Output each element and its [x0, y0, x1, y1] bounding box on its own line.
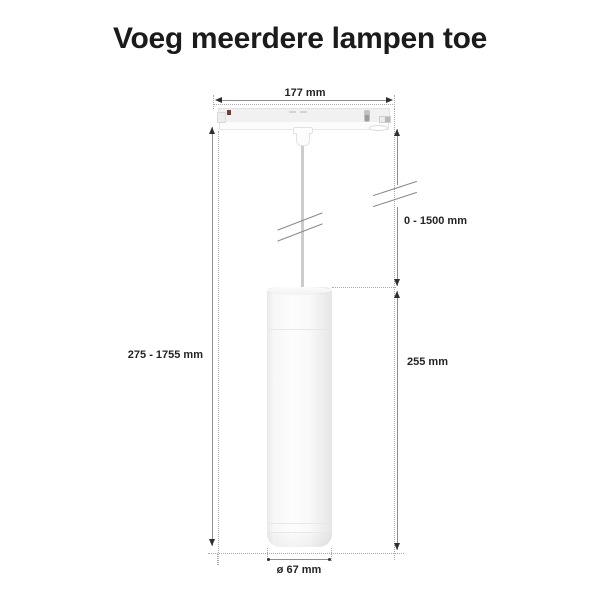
dimension-line-suspension-upper	[397, 129, 398, 185]
extension-line-track-left-top	[213, 95, 214, 109]
track-oval-detail	[369, 125, 388, 131]
dimension-label-overall-range: 275 - 1755 mm	[113, 348, 203, 362]
lamp-bottom-shade	[267, 533, 332, 547]
track-indicator-dot	[227, 110, 231, 115]
dimension-label-lamp-height: 255 mm	[407, 355, 448, 369]
pendant-cord	[301, 146, 304, 288]
cord-break-mark	[277, 212, 322, 230]
cord-canopy	[296, 133, 310, 146]
extension-line-lamp-top	[332, 287, 396, 288]
arrow-down-icon	[394, 543, 400, 550]
dimension-endpoint-dot	[267, 558, 270, 561]
arrow-right-icon	[386, 97, 393, 103]
lamp-seam-line	[268, 329, 331, 330]
dimension-endpoint-dot	[328, 558, 331, 561]
arrow-down-icon	[209, 539, 215, 546]
dimension-line-track-width	[219, 100, 389, 101]
lamp-seam-line	[268, 523, 331, 524]
extension-line-lamp-bottom	[208, 553, 404, 554]
track-lever-inner	[365, 115, 369, 121]
track-connector-box	[379, 116, 391, 123]
track-lever-switch	[364, 110, 370, 122]
product-dimension-diagram: Voeg meerdere lampen toe 177 mm 275 - 17…	[0, 0, 600, 600]
dimension-label-lamp-diameter: ø 67 mm	[264, 563, 334, 577]
extension-line-left	[218, 131, 219, 565]
track-mount-clip	[217, 112, 226, 123]
dimension-label-suspension-range: 0 - 1500 mm	[404, 214, 467, 228]
track-print-mark	[300, 111, 307, 113]
track-connector-end	[385, 117, 390, 122]
extension-stub-left	[217, 553, 218, 565]
arrow-left-icon	[215, 97, 222, 103]
extension-line-track-top	[213, 104, 395, 105]
dimension-break-mark	[373, 192, 417, 207]
dimension-line-lamp-height	[397, 291, 398, 550]
dimension-line-overall-range	[212, 127, 213, 546]
arrow-up-icon	[209, 127, 215, 134]
extension-line-right	[394, 109, 395, 560]
dimension-label-track-width: 177 mm	[255, 86, 355, 100]
track-print-mark	[289, 111, 296, 113]
dimension-line-lamp-diameter	[270, 559, 328, 560]
arrow-up-icon	[394, 291, 400, 298]
arrow-up-icon	[394, 129, 400, 136]
arrow-down-icon	[394, 279, 400, 286]
dimension-line-suspension-lower	[397, 207, 398, 286]
lamp-top-cap	[267, 287, 332, 294]
extension-stub-lamp-right	[331, 548, 332, 561]
extension-line-track-right-top	[394, 95, 395, 109]
pendant-lamp-body	[267, 287, 332, 547]
page-title: Voeg meerdere lampen toe	[0, 22, 600, 56]
